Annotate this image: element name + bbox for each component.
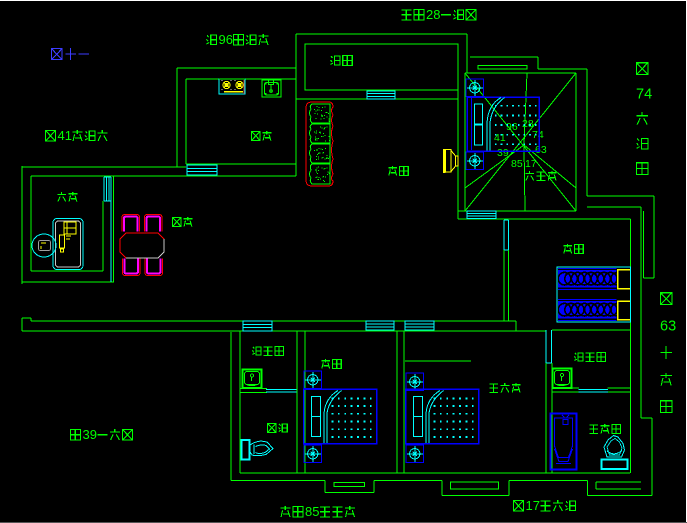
svg-text:41: 41 [58, 128, 72, 143]
svg-text:17: 17 [525, 158, 537, 170]
svg-text:17: 17 [526, 498, 540, 513]
svg-text:63: 63 [535, 144, 547, 156]
svg-text:63: 63 [660, 318, 676, 334]
svg-text:85: 85 [305, 504, 319, 519]
svg-text:85: 85 [511, 158, 523, 170]
svg-text:74: 74 [532, 129, 544, 141]
svg-text:39: 39 [497, 147, 509, 159]
svg-text:28: 28 [426, 7, 440, 22]
svg-text:96: 96 [219, 32, 233, 47]
svg-text:96: 96 [506, 121, 518, 133]
svg-text:39: 39 [83, 427, 97, 442]
svg-text:74: 74 [636, 86, 652, 102]
